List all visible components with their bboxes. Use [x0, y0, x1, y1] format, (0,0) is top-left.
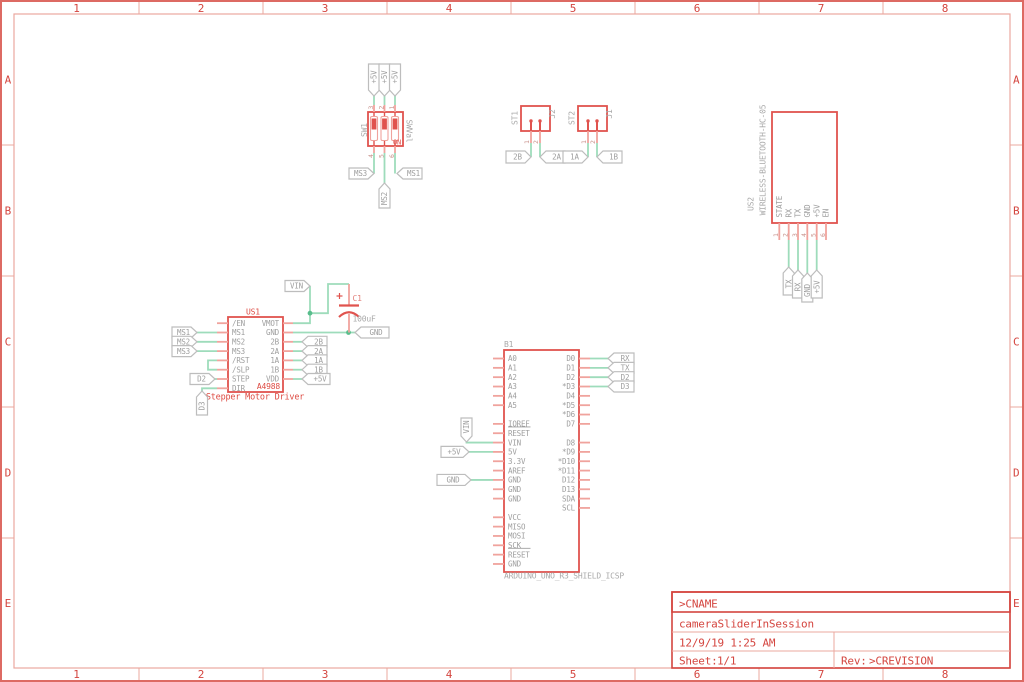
frame-row-label: D [5, 467, 11, 480]
us1-pin-label: VMOT [262, 319, 280, 328]
net-flag-label: +5V [448, 448, 462, 457]
c1-name: C1 [353, 294, 363, 303]
st-pin-head [595, 119, 598, 122]
frame-column-label: 1 [73, 668, 79, 681]
net-flag-label: MS3 [177, 347, 190, 356]
flag-d3[interactable]: D3 [197, 391, 208, 415]
st-value: J2 [548, 109, 557, 119]
flag-vin[interactable]: VIN [461, 418, 472, 442]
frame-column-label: 6 [694, 668, 700, 681]
us2-pin-label: RX [784, 208, 793, 217]
us2-name: US2 [747, 197, 756, 211]
capacitor-c1[interactable]: C1100uF [337, 284, 376, 333]
us2-pin-label: STATE [775, 195, 784, 217]
screw-terminals[interactable]: 12ST1J212ST2J1 [511, 106, 615, 157]
b1-pin-label: D12 [562, 476, 575, 485]
frame-row-label: D [1013, 467, 1019, 480]
flag-plus5v[interactable]: +5V [441, 446, 469, 457]
b1-pin-label: A0 [508, 354, 517, 363]
us2-pin-label: TX [794, 208, 803, 217]
wire [208, 360, 217, 369]
b1-name: B1 [504, 340, 514, 349]
sw1-name: SW1 [360, 123, 369, 137]
wire [202, 388, 217, 391]
st-name: ST1 [511, 111, 520, 125]
b1-pin-label: VCC [508, 513, 521, 522]
net-flag-label: 2B [513, 153, 522, 162]
b1-pin-label: D2 [566, 373, 575, 382]
b1-pin-label: GND [508, 476, 522, 485]
st-net-flag[interactable]: 2B [506, 151, 531, 163]
frame-column-label: 8 [942, 2, 948, 15]
b1-pin-label: A2 [508, 373, 517, 382]
us1-pin-label: 2B [270, 338, 279, 347]
sw1-value: SWVal [405, 119, 414, 142]
st-net-flag[interactable]: 1B [597, 151, 622, 163]
st-name: ST2 [568, 111, 577, 125]
wire [467, 442, 494, 443]
us1-pin-label: MS2 [232, 338, 245, 347]
b1-pin-label: A1 [508, 364, 517, 373]
flag-vin[interactable]: VIN [285, 281, 310, 292]
net-flag-label: MS3 [354, 169, 367, 178]
b1-pin-label: A5 [508, 401, 517, 410]
us2-pin-label: GND [803, 204, 812, 218]
b1-pin-label: 5V [508, 448, 517, 457]
frame-column-label: 1 [73, 2, 79, 15]
b1-pin-label: *D11 [558, 466, 575, 475]
b1-pin-label: *D5 [562, 401, 575, 410]
flag-net[interactable]: +5V [302, 374, 330, 385]
title-block-datetime: 12/9/19 1:25 AM [679, 637, 776, 650]
b1-pin-label: D4 [566, 392, 575, 401]
stepper-driver-us1[interactable]: /ENVMOTMS1GNDMS22BMS32A/RST1A/SLP1BSTEPV… [197, 284, 355, 403]
net-flag-label: D3 [621, 382, 630, 391]
net-flag-label: +5V [370, 70, 379, 84]
st-pin-number: 2 [589, 140, 597, 144]
frame-row-label: C [1013, 336, 1019, 349]
us1-pin-label: /EN [232, 319, 245, 328]
b1-pin-label: D7 [566, 420, 575, 429]
us2-pin-label: +5V [812, 204, 821, 218]
net-flag-label: +5V [391, 70, 400, 84]
b1-pin-label: *D3 [562, 382, 575, 391]
b1-value: ARDUINO_UNO_R3_SHIELD_ICSP [504, 572, 624, 581]
title-block-project: cameraSliderInSession [679, 618, 814, 631]
frame-row-label: A [5, 74, 12, 87]
b1-pin-label: GND [508, 560, 522, 569]
schematic-canvas[interactable]: 1122334455667788AABBCCDDEE >CNAMEcameraS… [0, 0, 1024, 682]
st-pin-number: 2 [532, 140, 540, 144]
title-block-cname-row [672, 592, 1010, 612]
b1-pin-label: AREF [508, 466, 526, 475]
net-flag-label: VIN [462, 421, 471, 434]
flag-gnd[interactable]: GND [437, 474, 471, 485]
sw1-pin-number: 1 [388, 106, 396, 110]
frame-column-label: 4 [446, 2, 453, 15]
flag-ms3[interactable]: MS3 [349, 168, 374, 179]
screw_terminal_1-body[interactable] [521, 106, 550, 131]
st-pin-number: 1 [580, 140, 588, 144]
st-pin-head [586, 119, 589, 122]
b1-pin-label: SDA [562, 494, 576, 503]
us1-caption: Stepper Motor Driver [206, 393, 304, 403]
us2-pin-number: 1 [772, 233, 780, 237]
net-flags[interactable]: +5V+5V+5VMS3MS2MS12B2A1A1BTXRXGND+5VMS1M… [172, 64, 822, 485]
sheet-label: Sheet: [679, 655, 718, 668]
net-flag-label: GND [370, 328, 384, 337]
net-flag-label: MS2 [380, 192, 389, 205]
b1-pin-label: MOSI [508, 532, 525, 541]
sheet-number: 1/1 [717, 655, 736, 668]
sw1-pin-number: 2 [378, 106, 386, 110]
flag-ms1[interactable]: MS1 [397, 168, 422, 179]
b1-pin-label: A3 [508, 382, 517, 391]
frame-row-label: B [1013, 205, 1020, 218]
us1-pin-label: MS1 [232, 328, 245, 337]
us1-pin-label: /RST [232, 356, 250, 365]
b1-pin-label: *D9 [562, 448, 575, 457]
st-pin-number: 1 [523, 140, 531, 144]
frame-row-label: A [1013, 74, 1020, 87]
us1-pin-label: 1A [270, 356, 279, 365]
b1-pin-label: MISO [508, 522, 526, 531]
net-flag-label: GND [803, 283, 812, 297]
sw1-slider-knob[interactable] [372, 119, 377, 130]
net-flag-label: GND [447, 476, 461, 485]
us1-pin-label: GND [266, 328, 280, 337]
net-flag-label: 1A [570, 153, 579, 162]
flag-plus5v[interactable]: +5V [390, 64, 401, 96]
rev-value: >CREVISION [869, 655, 933, 668]
us1-pin-label: /SLP [232, 365, 250, 374]
frame-column-label: 5 [570, 668, 576, 681]
us2-value: WIRELESS-BLUETOOTH-HC-05 [759, 104, 768, 215]
frame-column-label: 3 [322, 668, 328, 681]
screw_terminal_2-body[interactable] [578, 106, 607, 131]
title-block: >CNAMEcameraSliderInSession12/9/19 1:25 … [672, 592, 1010, 668]
net-flag-label: +5V [314, 375, 328, 384]
frame-row-label: B [5, 205, 12, 218]
net-flag-label: 2A [552, 153, 561, 162]
st-pin-head [538, 119, 541, 122]
net-flag-label: VIN [290, 282, 303, 291]
sw1-slider-knob[interactable] [393, 119, 398, 130]
frame-row-label: C [5, 336, 11, 349]
sw1-pin-number: 3 [367, 106, 375, 110]
net-flag-label: 1B [609, 153, 618, 162]
us2-pin-number: 4 [800, 233, 808, 237]
frame-column-label: 7 [818, 668, 824, 681]
us2-pin-number: 2 [782, 233, 790, 237]
flag-ms2[interactable]: MS2 [379, 183, 390, 208]
flag-gnd[interactable]: GND [355, 327, 389, 338]
flag-d2[interactable]: D2 [190, 374, 215, 385]
b1-pin-label: RESET [508, 429, 530, 438]
us2-pin-label: EN [822, 209, 831, 218]
frame-column-label: 8 [942, 668, 948, 681]
flag-serial[interactable]: D3 [608, 381, 634, 392]
frame-column-label: 3 [322, 2, 328, 15]
us1-value: A4988 [257, 382, 280, 391]
frame-column-label: 2 [198, 2, 204, 15]
net-flag-label: +5V [812, 280, 821, 294]
b1-pin-label: RESET [508, 550, 530, 559]
b1-pin-label: D13 [562, 485, 575, 494]
bluetooth-module-us2[interactable]: STATE1RX2TX3GND4+5V5EN6US2WIRELESS-BLUET… [747, 104, 838, 273]
b1-pin-label: *D10 [558, 457, 576, 466]
net-flag-label: +5V [380, 70, 389, 84]
flag-plus5v[interactable]: +5V [379, 64, 390, 96]
frame-column-label: 4 [446, 668, 453, 681]
b1-pin-label: GND [508, 494, 522, 503]
us1-pin-label: STEP [232, 375, 250, 384]
frame-column-label: 5 [570, 2, 576, 15]
st-net-flag[interactable]: 1A [563, 151, 588, 163]
b1-pin-label: D0 [566, 354, 575, 363]
flag-plus5v[interactable]: +5V [811, 270, 822, 298]
wire [310, 284, 349, 313]
us1-pin-label: MS3 [232, 347, 245, 356]
b1-pin-label: D8 [566, 438, 575, 447]
us1-name: US1 [246, 308, 260, 317]
net-flag-label: D3 [198, 402, 207, 411]
frame-column-label: 6 [694, 2, 700, 15]
b1-pin-label: D1 [566, 364, 575, 373]
us2-pin-number: 3 [791, 233, 799, 237]
b1-pin-label: A4 [508, 392, 517, 401]
flag-plus5v[interactable]: +5V [369, 64, 380, 96]
frame-row-label: E [5, 597, 11, 610]
c1-value: 100uF [353, 315, 376, 324]
us1-pin-label: 1B [270, 365, 279, 374]
b1-pin-label: VIN [508, 438, 521, 447]
st-pin-head [529, 119, 532, 122]
net-flag-label: D2 [197, 375, 206, 384]
us1-pin-label: 2A [270, 347, 279, 356]
us2-pin-number: 6 [819, 233, 827, 237]
junction-dot [308, 311, 313, 316]
b1-pin-label: *D6 [562, 410, 576, 419]
b1-pin-label: SCL [562, 504, 576, 513]
sw1-slider-knob[interactable] [382, 119, 387, 130]
flag-ms[interactable]: MS3 [172, 346, 197, 357]
arduino-shield-b1[interactable]: A0D0A1D1A2D2A3*D3A4D4A5*D5*D6IOREFD7RESE… [467, 340, 625, 581]
title-block-cname: >CNAME [679, 598, 718, 611]
b1-pin-label: 3.3V [508, 457, 526, 466]
frame-column-label: 7 [818, 2, 824, 15]
net-flag-label: MS1 [407, 169, 420, 178]
us2-pin-number: 5 [810, 233, 818, 237]
frame-column-label: 2 [198, 668, 204, 681]
b1-pin-label: GND [508, 485, 522, 494]
st-value: J1 [605, 109, 614, 119]
frame-row-label: E [1013, 597, 1019, 610]
st-net-flag[interactable]: 2A [540, 151, 565, 163]
rev-label: Rev: [841, 655, 867, 668]
sw1-on-label: ON [393, 139, 401, 147]
